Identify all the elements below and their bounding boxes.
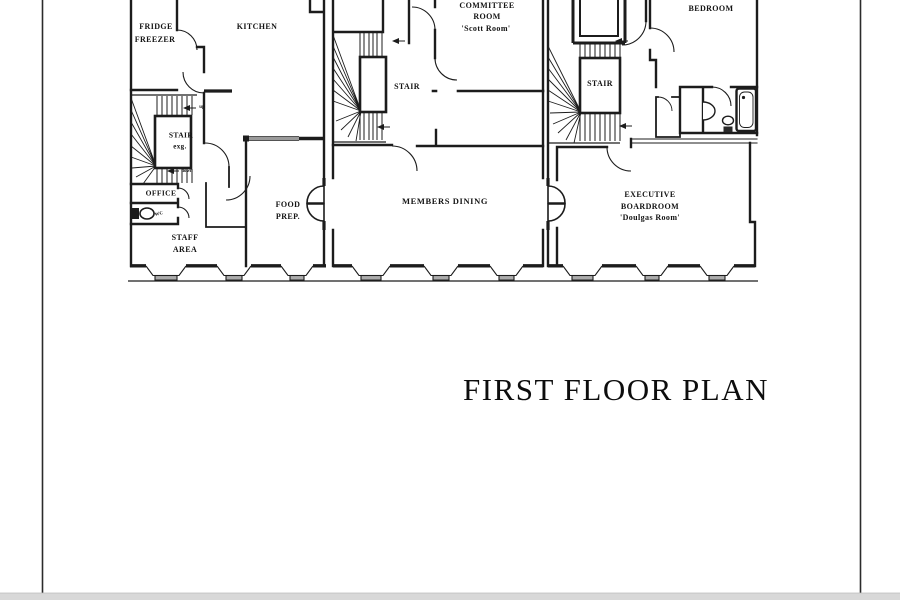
toilet-icon [723, 116, 734, 125]
room-label-office: OFFICE [146, 189, 177, 197]
room-label-fridge-freezer-line1: FRIDGE [139, 23, 173, 31]
room-label-committee-line1: COMMITTEE [459, 2, 514, 10]
room-label-boardroom-line3: 'Doulgas Room' [620, 214, 680, 222]
room-label-fridge-freezer-line2: FREEZER [135, 36, 176, 44]
floor-plan-drawing [0, 0, 900, 600]
room-label-committee-line2: ROOM [473, 13, 500, 21]
room-label-food-prep-line2: PREP. [276, 213, 300, 221]
room-label-kitchen: KITCHEN [237, 23, 278, 31]
sheet-title: FIRST FLOOR PLAN [463, 372, 769, 408]
room-label-bedroom: BEDROOM [688, 5, 733, 13]
room-label-food-prep-line1: FOOD [276, 201, 301, 209]
thick-wall-segments [130, 91, 755, 266]
room-label-committee-line3: 'Scott Room' [461, 25, 510, 33]
room-label-members-dining: MEMBERS DINING [402, 197, 488, 206]
wc-toilet-fixture [132, 208, 154, 219]
floor-plan-sheet: FRIDGE FREEZER KITCHEN STAIR exg. up dow… [0, 0, 900, 600]
lift-shaft [573, 0, 625, 43]
stair-up-label: up [199, 105, 205, 110]
sink-icon [703, 102, 715, 120]
room-label-boardroom-line2: BOARDROOM [621, 203, 679, 211]
room-label-stair-west-exg: exg. [173, 144, 186, 151]
room-label-stair-east: STAIR [587, 80, 613, 88]
bathroom-fixtures [703, 89, 756, 133]
room-label-staff-area-line1: STAFF [172, 234, 199, 242]
door-swing-arcs [177, 7, 731, 218]
room-label-stair-west: STAIR [169, 131, 193, 139]
stair-newel-boxes [155, 57, 620, 168]
room-label-staff-area-line2: AREA [173, 246, 197, 254]
sheet-footer-strip [0, 593, 900, 600]
facade-windows [146, 266, 734, 280]
room-label-stair-mid: STAIR [394, 83, 420, 91]
stair-down-label: down [181, 169, 193, 174]
room-label-boardroom-line1: EXECUTIVE [624, 191, 675, 199]
kitchen-servery-screen [243, 136, 324, 142]
